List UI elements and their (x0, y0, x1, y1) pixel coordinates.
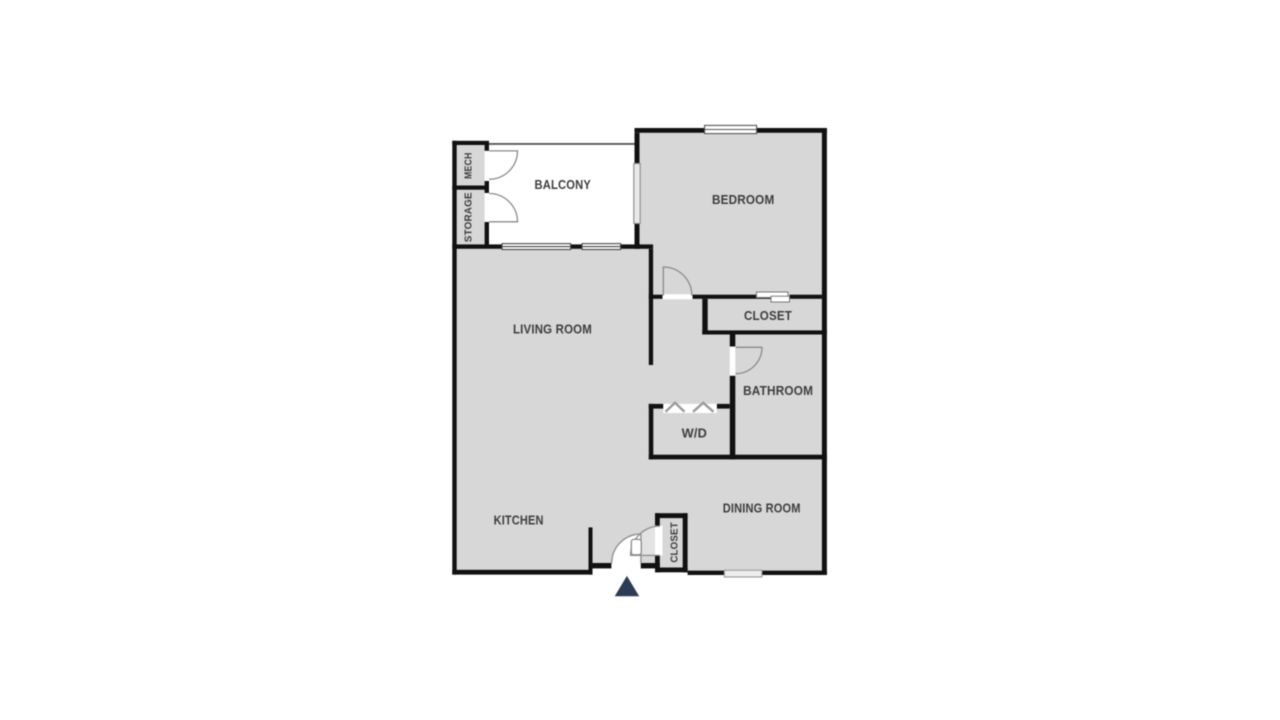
svg-text:MECH: MECH (463, 153, 475, 180)
svg-text:DINING ROOM: DINING ROOM (723, 501, 801, 516)
svg-text:LIVING ROOM: LIVING ROOM (513, 322, 592, 337)
svg-text:BEDROOM: BEDROOM (712, 192, 775, 207)
svg-text:KITCHEN: KITCHEN (494, 513, 544, 528)
svg-text:CLOSET: CLOSET (744, 308, 792, 323)
svg-text:W/D: W/D (682, 425, 708, 440)
svg-text:BALCONY: BALCONY (535, 177, 592, 192)
svg-text:BATHROOM: BATHROOM (743, 383, 813, 398)
svg-text:CLOSET: CLOSET (668, 522, 680, 563)
svg-text:STORAGE: STORAGE (463, 192, 475, 242)
